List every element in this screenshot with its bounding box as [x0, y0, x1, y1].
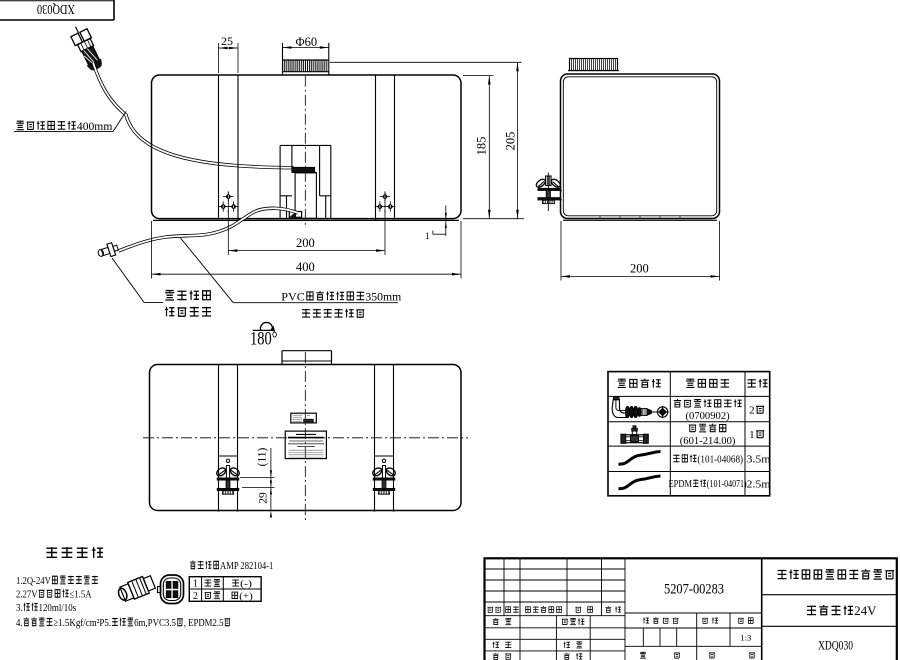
svg-text:2.5m: 2.5m: [747, 479, 771, 490]
svg-text:(0700902): (0700902): [686, 411, 731, 422]
svg-text:350mm: 350mm: [365, 289, 401, 303]
svg-text:185: 185: [475, 137, 489, 156]
svg-text:5207-00283: 5207-00283: [664, 582, 724, 598]
svg-text:24V: 24V: [854, 603, 877, 618]
svg-text:1: 1: [749, 429, 755, 441]
svg-text:3.5m: 3.5m: [747, 455, 771, 466]
svg-text:4.: 4.: [16, 617, 23, 629]
svg-text:(101-04068): (101-04068): [697, 454, 743, 465]
svg-text:205: 205: [504, 132, 518, 151]
svg-text:, EPDM2.5: , EPDM2.5: [184, 617, 224, 629]
svg-text:PVC: PVC: [281, 289, 305, 303]
svg-text:400mm: 400mm: [77, 119, 113, 133]
svg-text:2.27V: 2.27V: [16, 589, 38, 601]
svg-text:(-): (-): [240, 579, 252, 590]
svg-text:3.: 3.: [16, 602, 23, 614]
svg-text:(+): (+): [239, 591, 252, 602]
svg-text:1: 1: [425, 231, 430, 241]
svg-text:Φ60: Φ60: [296, 35, 318, 49]
svg-text:1.2Q-24V: 1.2Q-24V: [16, 575, 51, 587]
svg-text:25: 25: [221, 34, 233, 48]
svg-text:29: 29: [258, 492, 270, 504]
svg-text:200: 200: [296, 236, 315, 250]
svg-text:2: 2: [193, 591, 198, 602]
svg-text:EPDM: EPDM: [669, 479, 693, 490]
svg-text:200: 200: [630, 262, 649, 276]
svg-text:6m,PVC3.5: 6m,PVC3.5: [134, 617, 176, 629]
svg-text:180°: 180°: [250, 329, 278, 350]
svg-text:(101-04071): (101-04071): [707, 479, 747, 490]
svg-text:1:3: 1:3: [740, 632, 752, 642]
svg-text:1: 1: [193, 579, 198, 590]
svg-text:(11): (11): [257, 447, 269, 466]
svg-text:XDQ030: XDQ030: [37, 2, 75, 17]
svg-text:≤1.5A: ≤1.5A: [70, 589, 92, 601]
svg-text:400: 400: [296, 260, 315, 274]
svg-text:XDQ030: XDQ030: [818, 639, 853, 653]
svg-text:AMP 282104-1: AMP 282104-1: [220, 560, 273, 572]
svg-text:2: 2: [749, 405, 755, 417]
svg-text:120ml/10s: 120ml/10s: [39, 602, 77, 614]
svg-text:(601-214.00): (601-214.00): [680, 436, 736, 447]
svg-text:≥1.5Kgf/cm²P5.: ≥1.5Kgf/cm²P5.: [53, 617, 111, 629]
